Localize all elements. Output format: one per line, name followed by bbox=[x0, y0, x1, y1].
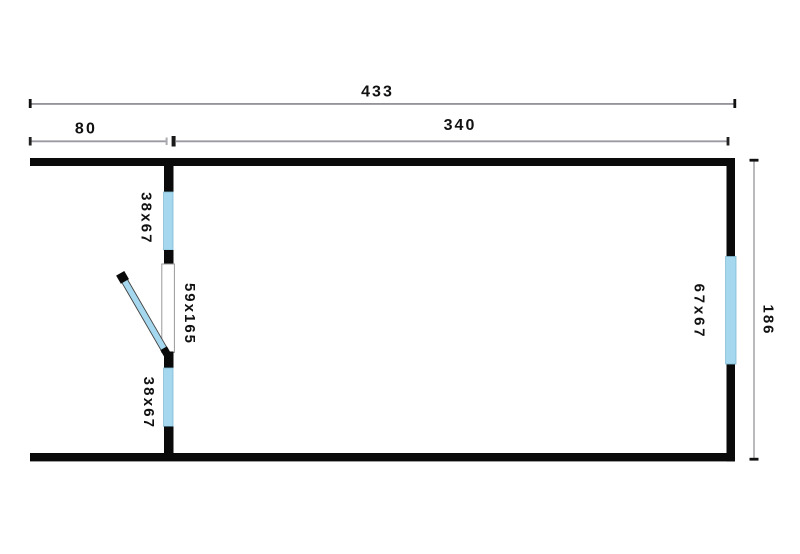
svg-text:80: 80 bbox=[75, 121, 97, 138]
svg-text:340: 340 bbox=[444, 117, 477, 134]
svg-text:38x67: 38x67 bbox=[138, 192, 155, 245]
svg-text:186: 186 bbox=[760, 304, 777, 335]
svg-text:67x67: 67x67 bbox=[691, 284, 708, 340]
svg-text:38x67: 38x67 bbox=[140, 377, 157, 430]
svg-text:433: 433 bbox=[361, 84, 394, 101]
svg-text:59x165: 59x165 bbox=[181, 283, 198, 345]
